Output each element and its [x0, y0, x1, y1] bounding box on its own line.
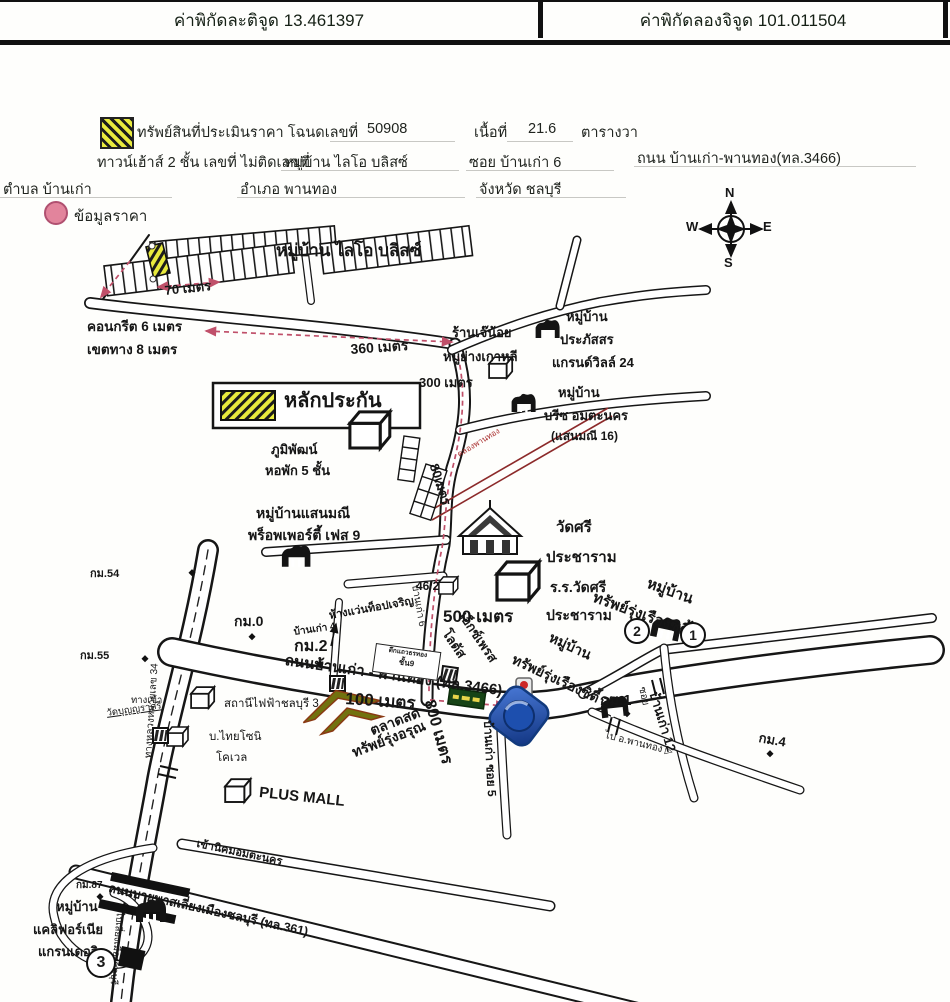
building-icon-plusmall	[225, 779, 250, 802]
label-prapassorn-3: แกรนด์วิลล์ 24	[552, 356, 634, 370]
shop-icon	[330, 676, 345, 691]
label-thaisoni-2: โคเวล	[216, 752, 247, 765]
compass-w: W	[686, 220, 698, 234]
label-roadwidth: เขตทาง 8 เมตร	[87, 343, 177, 358]
label-california-1: หมู่บ้าน	[56, 900, 98, 914]
label-watsri-2: ประชาราม	[546, 550, 617, 567]
label-watsri-1: วัดศรี	[556, 520, 592, 537]
label-power-station: สถานีไฟฟ้าชลบุรี 3	[224, 698, 319, 711]
label-concrete: คอนกรีต 6 เมตร	[87, 320, 182, 335]
label-breeze-2: บรีซ อมตะนคร	[544, 409, 628, 423]
building-icon-school	[497, 562, 539, 600]
circled-number-2: 2	[624, 618, 650, 644]
subdivision-rows	[104, 226, 473, 296]
label-km0: กม.0	[234, 614, 263, 629]
label-breeze-3: (แสนมณี 16)	[551, 430, 618, 443]
label-prapassorn-1: หมู่บ้าน	[566, 310, 608, 324]
building-icon-phumiphat	[350, 412, 390, 448]
label-jenoi-1: ร้านเจ๊น้อย	[452, 326, 512, 340]
label-km87: กม.87	[76, 880, 103, 891]
building-icon-power-station	[191, 687, 214, 708]
label-km54: กม.54	[90, 568, 119, 580]
compass-rose	[700, 202, 762, 256]
label-thaisoni-1: บ.ไทยโซนิ	[209, 731, 261, 744]
appraisal-map-page: ค่าพิกัดละติจูด 13.461397 ค่าพิกัดลองจิจ…	[0, 0, 950, 1002]
compass-n: N	[725, 186, 734, 200]
label-lio-bliss: หมู่บ้าน ไลโอ บลิสซ์	[276, 242, 421, 261]
label-breeze-1: หมู่บ้าน	[558, 386, 600, 400]
circled-number-1: 1	[680, 622, 706, 648]
building-icon-462	[439, 577, 458, 594]
label-school-2: ประชาราม	[546, 608, 612, 623]
compass-e: E	[763, 220, 772, 234]
gate-icon-breeze	[512, 394, 536, 412]
label-soi5: บ้านเก่า ซอย 5	[481, 720, 498, 797]
label-phumiphat-1: ภูมิพัฒน์	[271, 443, 317, 457]
legend-collateral-label: หลักประกัน	[284, 390, 382, 412]
label-phumiphat-2: หอพัก 5 ชั้น	[265, 464, 330, 478]
label-km1: กม.1	[600, 693, 631, 710]
compass-s: S	[724, 256, 733, 270]
label-prapassorn-2: ประภัสสร	[560, 333, 614, 347]
building-icon-thaisoni	[167, 727, 188, 746]
label-jenoi-2: หมูย่างเกาหลี	[443, 350, 518, 364]
temple-icon-watsri	[459, 500, 521, 554]
label-sanmanee-2: พร็อพเพอร์ตี้ เฟส 9	[248, 528, 360, 543]
map-canvas	[0, 0, 950, 1002]
label-california-2: แคลิฟอร์เนีย	[33, 923, 103, 937]
circled-number-3: 3	[86, 948, 116, 978]
label-km55: กม.55	[80, 650, 109, 662]
label-300m: 300 เมตร	[419, 376, 473, 390]
price-info-circle	[45, 202, 67, 224]
label-sanmanee-1: หมู่บ้านแสนมณี	[256, 506, 350, 521]
